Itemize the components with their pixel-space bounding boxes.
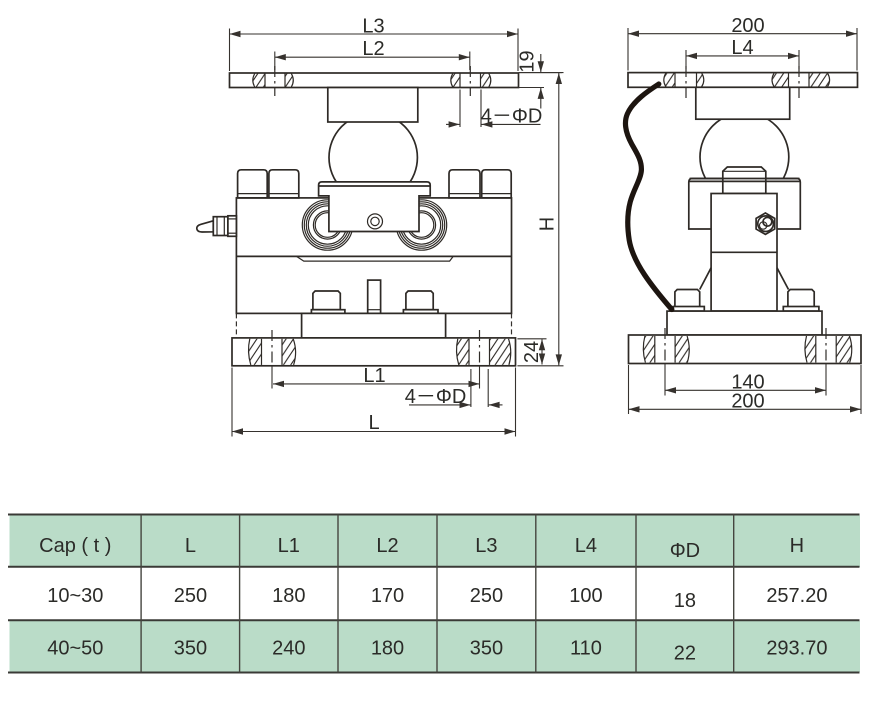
svg-text:250: 250 [470,585,503,607]
svg-text:240: 240 [272,638,305,660]
svg-text:18: 18 [674,590,696,612]
svg-text:24: 24 [521,341,543,363]
svg-text:L1: L1 [363,365,385,387]
svg-text:10~30: 10~30 [47,585,103,607]
svg-text:100: 100 [569,585,602,607]
svg-text:250: 250 [174,585,207,607]
svg-text:40~50: 40~50 [47,638,103,660]
svg-text:ΦD: ΦD [670,540,700,562]
svg-text:L3: L3 [475,535,497,557]
svg-text:L2: L2 [362,38,384,60]
svg-text:H: H [537,217,559,231]
svg-text:L1: L1 [278,535,300,557]
svg-text:4－ΦD: 4－ΦD [481,106,543,128]
svg-text:180: 180 [272,585,305,607]
svg-text:Cap ( t ): Cap ( t ) [39,535,111,557]
svg-text:293.70: 293.70 [766,638,827,660]
svg-text:L2: L2 [376,535,398,557]
svg-text:257.20: 257.20 [766,585,827,607]
svg-text:19: 19 [517,50,539,72]
svg-text:4－ΦD: 4－ΦD [405,386,467,408]
svg-text:170: 170 [371,585,404,607]
svg-text:350: 350 [470,638,503,660]
svg-text:200: 200 [731,15,764,37]
svg-text:110: 110 [570,638,602,660]
svg-text:180: 180 [371,638,404,660]
svg-text:L4: L4 [731,37,753,59]
svg-text:350: 350 [174,638,207,660]
svg-text:200: 200 [731,390,764,412]
svg-text:22: 22 [674,643,696,665]
svg-text:L: L [368,412,379,434]
svg-text:L: L [185,535,196,557]
svg-text:L3: L3 [362,16,384,38]
svg-text:H: H [790,535,804,557]
svg-text:L4: L4 [575,535,597,557]
